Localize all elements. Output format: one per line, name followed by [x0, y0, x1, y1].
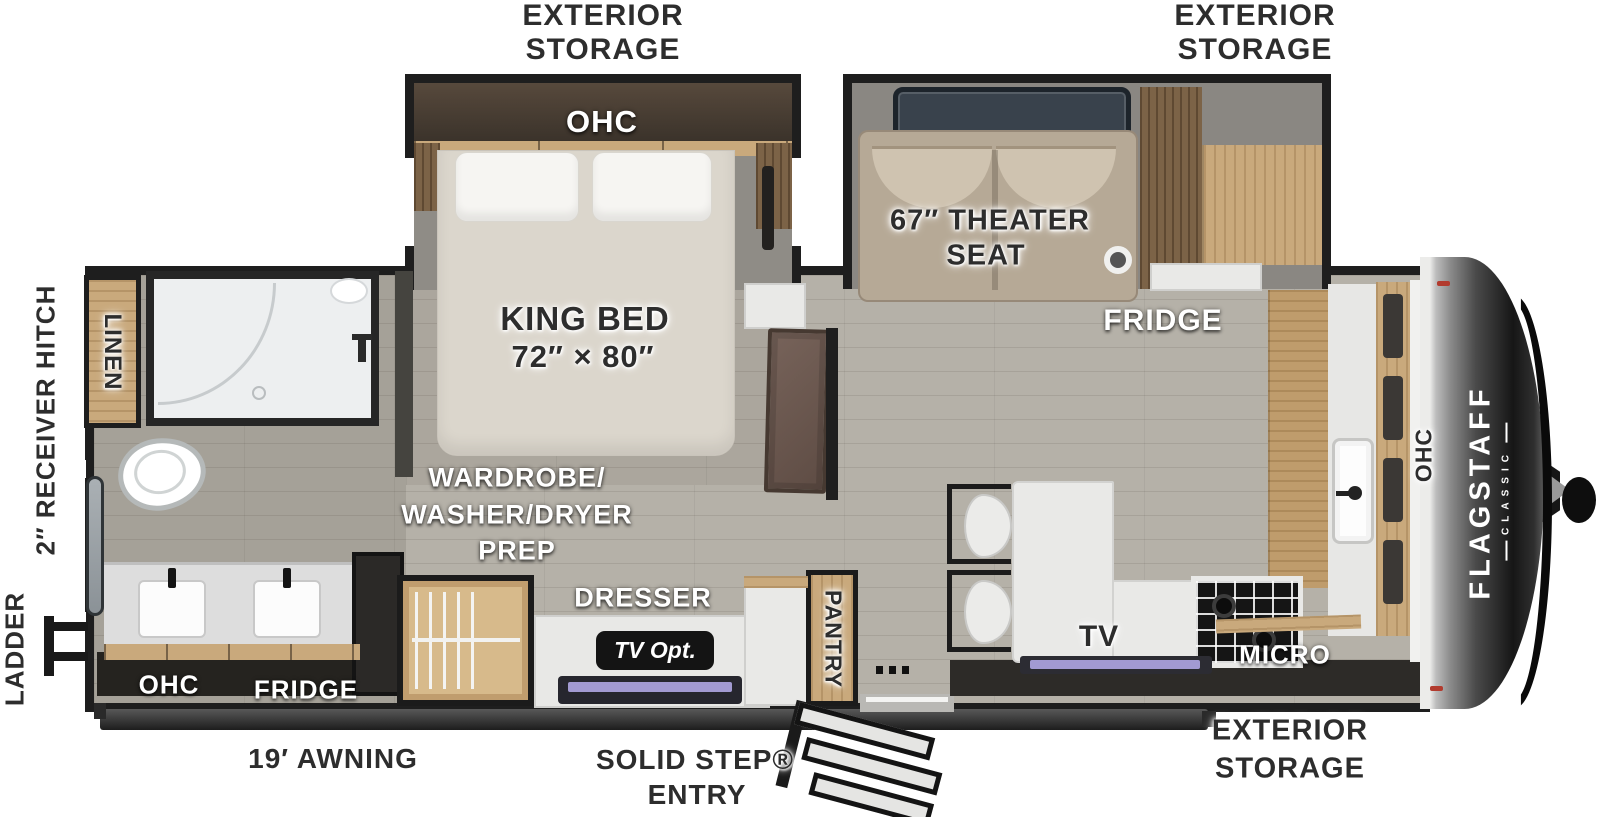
label-pantry: PANTRY: [820, 590, 847, 688]
bedroom-door-panel: [764, 328, 830, 494]
cap-marker-top: [1437, 281, 1450, 286]
entry-threshold-step: [866, 697, 948, 702]
pillow-right: [592, 152, 712, 222]
tv-optional-badge: TV Opt.: [596, 631, 714, 670]
label-ladder: LADDER: [0, 592, 31, 706]
mid-wall-stub: [826, 328, 838, 500]
cap-marker-bottom: [1430, 686, 1443, 691]
awning-rail: [100, 709, 1208, 730]
label-fridge-rear: FRIDGE: [254, 675, 358, 706]
label-entry-1: SOLID STEP®: [596, 744, 794, 776]
brand-series: CLASSIC: [1501, 423, 1512, 561]
awning-bracket-left: [94, 703, 106, 719]
bath-bedroom-wall: [395, 271, 413, 477]
wardrobe-bar: [412, 638, 520, 642]
front-cap-logo: FLAGSTAFF CLASSIC: [1465, 384, 1512, 599]
vanity-sink-left: [138, 580, 206, 638]
dinette-chair-2: [947, 570, 1011, 652]
label-tv-opt: TV Opt.: [614, 637, 696, 664]
label-exterior-storage-bottom-2: STORAGE: [1215, 753, 1365, 786]
fridge-cabinet: [1140, 87, 1202, 289]
bedroom-window-pane: [762, 166, 774, 250]
chair-seat: [964, 494, 1012, 558]
kitchen-faucet-stem: [1336, 491, 1352, 496]
shower-drain-icon: [252, 386, 266, 400]
rv-floorplan: FLAGSTAFF CLASSIC EXTERIOR STORAGE EXTER…: [0, 0, 1600, 817]
brand-name: FLAGSTAFF: [1465, 384, 1498, 599]
label-king-bed-1: KING BED: [500, 300, 669, 338]
label-tv: TV: [1079, 620, 1119, 654]
vanity-sink-right: [253, 580, 321, 638]
label-theater-seat-2: SEAT: [946, 240, 1025, 273]
label-receiver-hitch: 2″ RECEIVER HITCH: [31, 285, 62, 556]
ladder-arm-bottom: [46, 652, 88, 661]
label-vanity-ohc: OHC: [139, 670, 200, 701]
label-theater-seat-1: 67″ THEATER: [890, 205, 1090, 238]
shower-faucet-bar: [352, 334, 372, 340]
label-bedroom-ohc: OHC: [566, 104, 638, 140]
kitchen-counter-face: [1268, 290, 1328, 588]
vanity-ohc-shelf: [104, 644, 360, 660]
cabinet-door-2: [1383, 376, 1403, 440]
label-dresser: DRESSER: [574, 583, 712, 614]
dinette-chair-1: [947, 484, 1011, 564]
entry-vent-dots: [876, 666, 910, 674]
washer-dryer-prep-cabinet: [744, 584, 808, 706]
label-exterior-storage-top-right-1: EXTERIOR: [1174, 0, 1335, 33]
faucet-icon-right: [283, 568, 291, 588]
label-king-bed-2: 72″ × 80″: [512, 339, 655, 375]
cabinet-door-1: [1383, 294, 1403, 358]
label-micro: MICRO: [1239, 640, 1331, 671]
label-wardrobe-3: PREP: [478, 536, 556, 567]
label-wardrobe-1: WARDROBE/: [429, 463, 606, 494]
washer-dryer-prep-top: [744, 576, 808, 588]
console-tv-screen: [1030, 660, 1200, 669]
label-kitchen-ohc: OHC: [1411, 428, 1438, 482]
slide-window-right: [792, 158, 801, 246]
dresser-tv-screen: [568, 682, 732, 692]
label-awning: 19′ AWNING: [248, 743, 418, 775]
label-exterior-storage-top-right-2: STORAGE: [1178, 33, 1333, 67]
stove-burner-1: [1212, 594, 1236, 618]
label-exterior-storage-top-left-1: EXTERIOR: [522, 0, 683, 33]
chair-seat: [964, 580, 1012, 644]
cabinet-door-4: [1383, 540, 1403, 604]
pillow-left: [455, 152, 579, 222]
label-linen: LINEN: [98, 314, 126, 391]
label-exterior-storage-bottom-1: EXTERIOR: [1212, 715, 1368, 748]
fridge-door-panel: [1202, 145, 1322, 265]
ladder-arm-top: [46, 622, 88, 631]
cabinet-door-3: [1383, 458, 1403, 522]
rear-wall-window-1: [77, 460, 86, 478]
bathroom-mirror: [86, 476, 104, 616]
label-wardrobe-2: WASHER/DRYER: [401, 500, 633, 531]
label-fridge-main: FRIDGE: [1103, 304, 1222, 338]
hitch-coupler: [1562, 477, 1596, 523]
fridge-shelf: [1150, 263, 1262, 291]
label-entry-2: ENTRY: [648, 779, 747, 811]
shower-seat: [330, 278, 368, 304]
cupholder-icon: [1104, 246, 1132, 274]
label-exterior-storage-top-left-2: STORAGE: [526, 33, 681, 67]
faucet-icon-left: [168, 568, 176, 588]
slide-window-left: [405, 158, 414, 246]
mid-upper-cabinet: [744, 283, 806, 329]
